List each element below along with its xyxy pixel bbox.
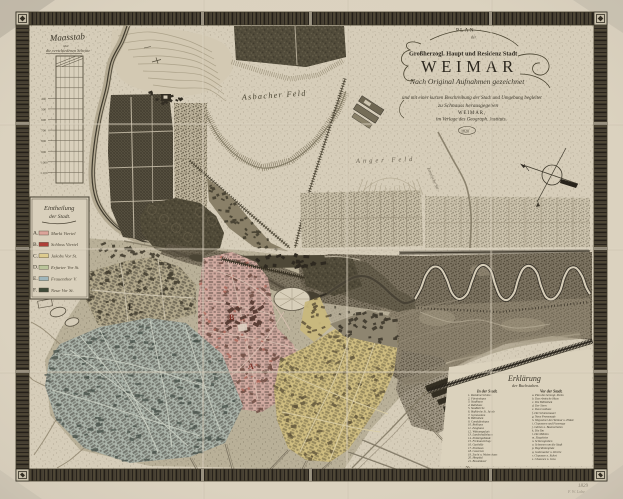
svg-text:Maasstab: Maasstab bbox=[49, 31, 86, 43]
svg-text:700: 700 bbox=[41, 129, 46, 133]
svg-text:s. Chaussee n. Jena: s. Chaussee n. Jena bbox=[532, 457, 556, 461]
svg-text:und mit einer kurzen Beschreib: und mit einer kurzen Beschreibung der St… bbox=[402, 96, 542, 101]
svg-text:WEIMAR,: WEIMAR, bbox=[458, 111, 486, 116]
svg-text:WEIMAR: WEIMAR bbox=[421, 57, 518, 76]
svg-text:der: der bbox=[471, 36, 477, 40]
svg-text:600: 600 bbox=[41, 118, 46, 122]
svg-text:F: F bbox=[128, 302, 134, 312]
svg-text:Schloss Viertel: Schloss Viertel bbox=[51, 242, 79, 247]
svg-text:800: 800 bbox=[41, 139, 46, 143]
svg-text:1820: 1820 bbox=[461, 128, 469, 133]
svg-text:B: B bbox=[229, 313, 235, 322]
svg-text:F. W. Lobe: F. W. Lobe bbox=[567, 489, 585, 494]
svg-text:1100: 1100 bbox=[41, 171, 48, 175]
svg-text:Neue Vor St.: Neue Vor St. bbox=[50, 288, 74, 293]
svg-text:21. Brauhäuser: 21. Brauhäuser bbox=[468, 459, 487, 463]
svg-text:im Verlage des Geograph. Insti: im Verlage des Geograph. Instituts. bbox=[436, 118, 507, 123]
svg-text:Nach Original Aufnahmen gezeic: Nach Original Aufnahmen gezeichnet bbox=[409, 77, 525, 86]
svg-text:F.: F. bbox=[33, 288, 38, 294]
svg-text:Eintheilung: Eintheilung bbox=[43, 205, 75, 212]
svg-text:400: 400 bbox=[41, 97, 46, 101]
svg-text:500: 500 bbox=[41, 107, 46, 111]
svg-text:der Stadt.: der Stadt. bbox=[49, 214, 70, 220]
svg-text:der Buchstaben.: der Buchstaben. bbox=[512, 383, 539, 388]
svg-text:Erfurter Vor St.: Erfurter Vor St. bbox=[50, 265, 79, 270]
svg-text:Erklärung: Erklärung bbox=[507, 374, 541, 383]
svg-text:zu Schnauss herausgegeben: zu Schnauss herausgegeben bbox=[437, 103, 498, 109]
svg-text:Markt Viertel: Markt Viertel bbox=[50, 231, 76, 236]
svg-text:B.: B. bbox=[33, 242, 39, 248]
svg-text:A: A bbox=[248, 362, 254, 371]
svg-text:E.: E. bbox=[33, 276, 38, 282]
svg-text:C.: C. bbox=[33, 253, 39, 259]
svg-text:D.: D. bbox=[33, 265, 39, 271]
svg-text:Jakobs Vor St.: Jakobs Vor St. bbox=[51, 254, 77, 259]
svg-text:A.: A. bbox=[33, 231, 39, 237]
svg-text:die verschiedenen Schritte: die verschiedenen Schritte bbox=[46, 48, 90, 53]
svg-text:900: 900 bbox=[41, 150, 46, 154]
svg-text:1000: 1000 bbox=[41, 160, 48, 164]
svg-text:Frauenthor V.: Frauenthor V. bbox=[50, 276, 77, 281]
